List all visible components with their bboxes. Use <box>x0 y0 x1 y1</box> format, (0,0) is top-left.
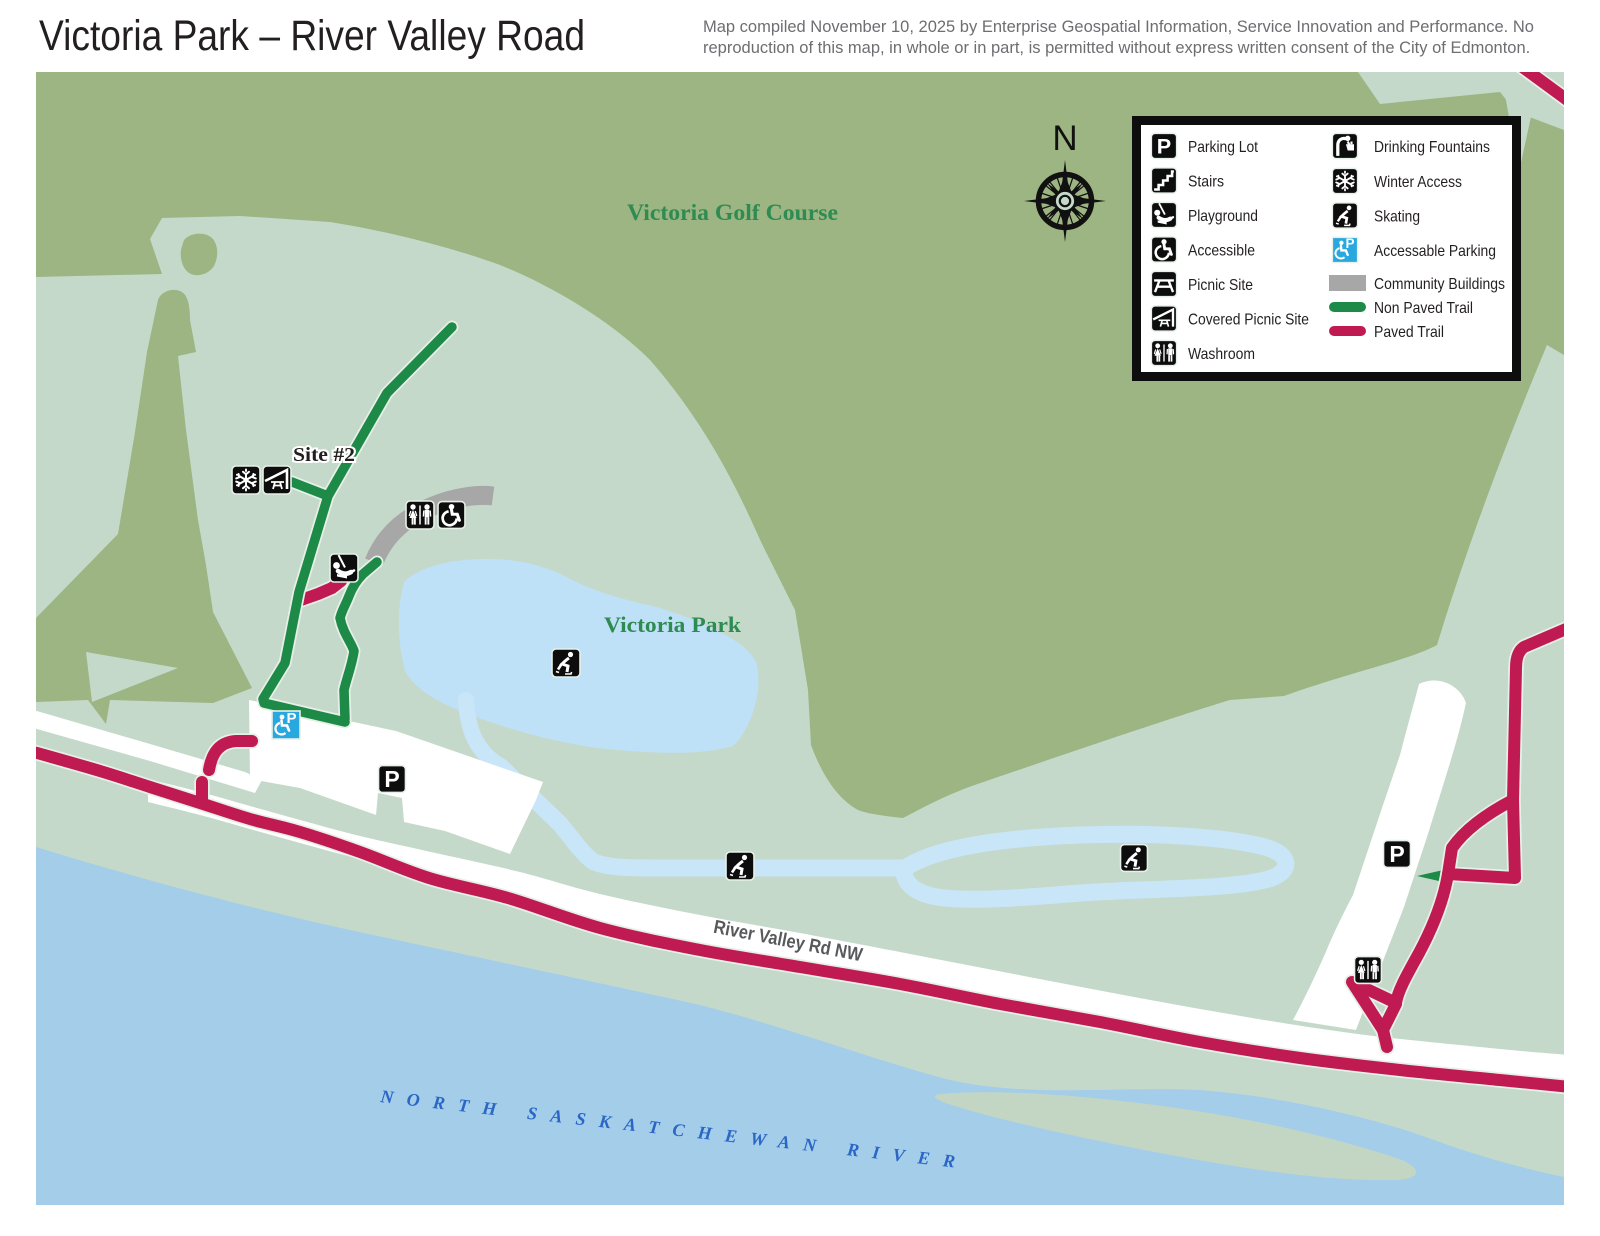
svg-text:Playground: Playground <box>1188 208 1258 225</box>
svg-text:Washroom: Washroom <box>1188 346 1255 363</box>
svg-text:Accessible: Accessible <box>1188 243 1255 260</box>
svg-text:Drinking Fountains: Drinking Fountains <box>1374 139 1490 156</box>
svg-text:Parking Lot: Parking Lot <box>1188 139 1258 156</box>
svg-text:Covered Picnic Site: Covered Picnic Site <box>1188 312 1309 329</box>
svg-text:Map compiled November 10, 2025: Map compiled November 10, 2025 by Enterp… <box>703 18 1534 36</box>
svg-text:Community Buildings: Community Buildings <box>1374 276 1505 293</box>
svg-text:Victoria Golf Course: Victoria Golf Course <box>627 200 838 225</box>
svg-text:N: N <box>1052 119 1077 158</box>
svg-text:Picnic Site: Picnic Site <box>1188 277 1253 294</box>
svg-text:Non Paved Trail: Non Paved Trail <box>1374 300 1473 317</box>
svg-text:Accessable Parking: Accessable Parking <box>1374 243 1496 260</box>
svg-text:Victoria Park – River Valley: Victoria Park – River Valley Road <box>39 12 585 60</box>
svg-text:Victoria Park: Victoria Park <box>604 612 742 637</box>
svg-text:Winter Access: Winter Access <box>1374 174 1462 191</box>
svg-text:Site #2: Site #2 <box>293 444 355 466</box>
svg-text:Stairs: Stairs <box>1188 174 1224 191</box>
svg-text:Paved Trail: Paved Trail <box>1374 324 1444 341</box>
svg-text:Skating: Skating <box>1374 209 1420 226</box>
svg-text:reproduction of this map, in w: reproduction of this map, in whole or in… <box>703 39 1530 57</box>
